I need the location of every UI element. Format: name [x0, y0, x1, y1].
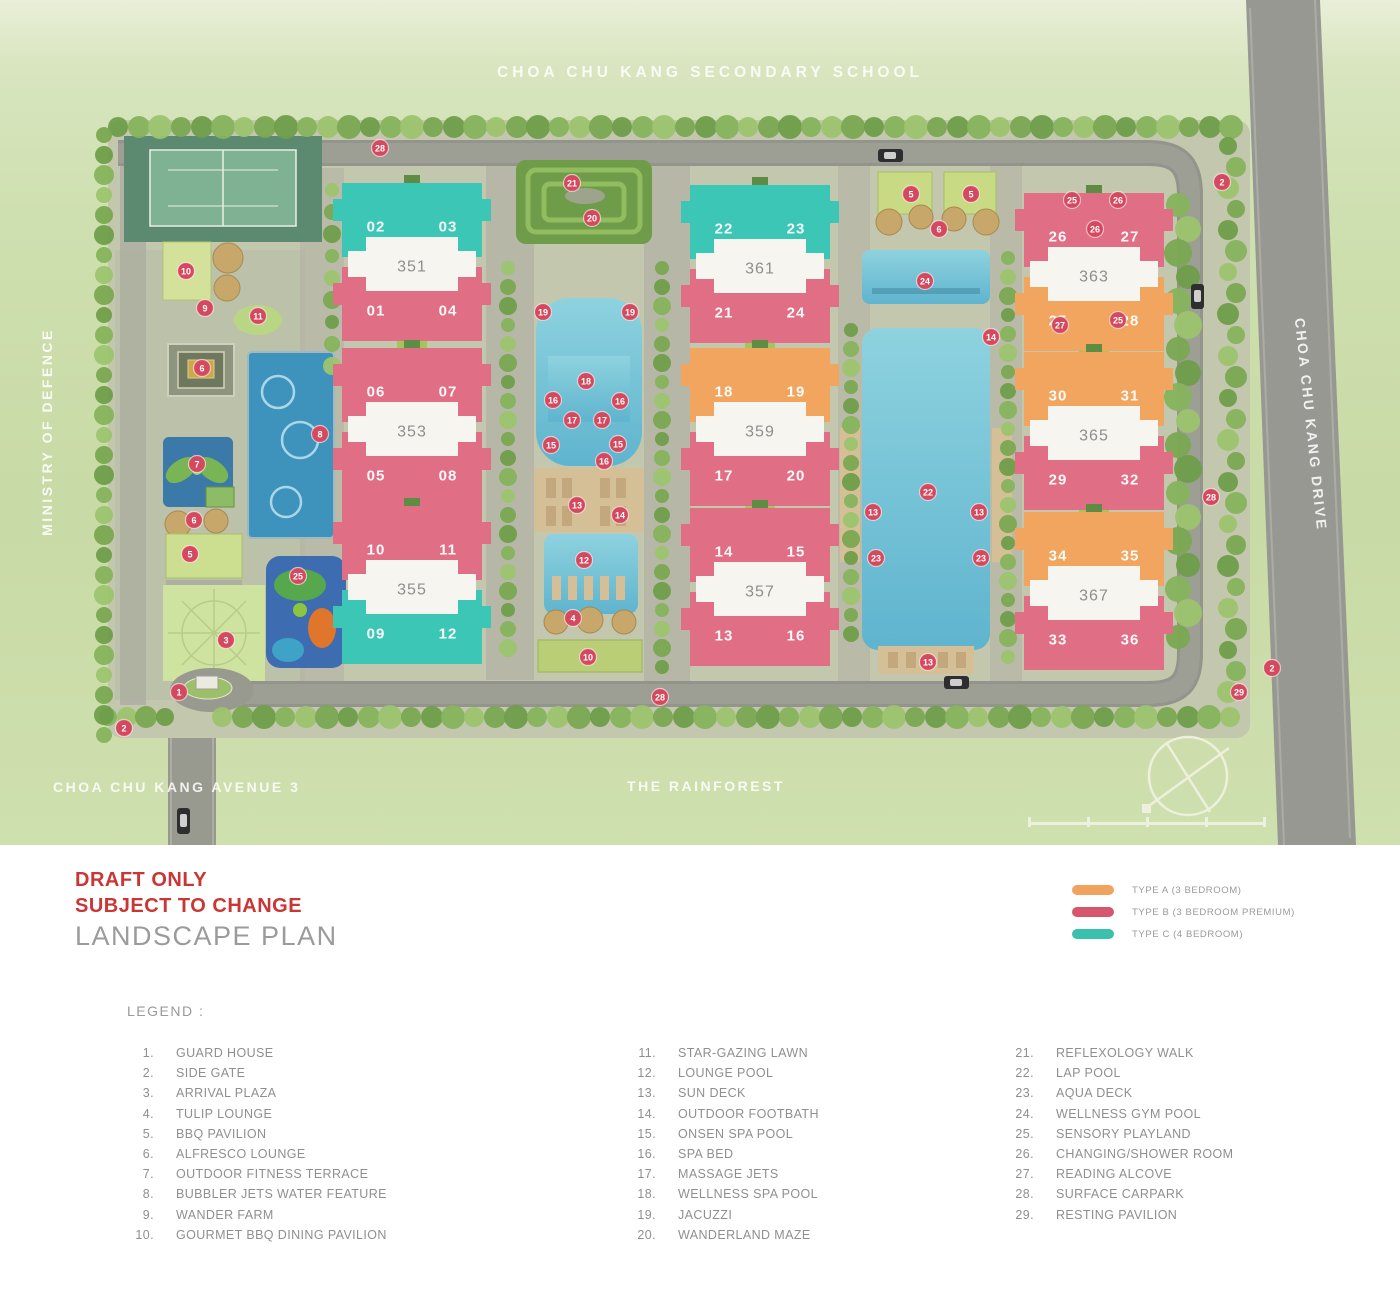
legend-item: 14.OUTDOOR FOOTBATH — [622, 1104, 819, 1124]
rainforest-label: THE RAINFOREST — [627, 778, 785, 794]
svg-text:16: 16 — [615, 397, 625, 407]
type-swatch — [1072, 929, 1114, 939]
svg-text:26: 26 — [1090, 225, 1100, 235]
svg-text:23: 23 — [871, 554, 881, 564]
amenity-marker-11: 11 — [250, 308, 267, 325]
landscape-plan-map: 0203010435106070508353101109123552223212… — [0, 0, 1400, 845]
svg-text:5: 5 — [908, 190, 913, 200]
legend-column-3: 21.REFLEXOLOGY WALK22.LAP POOL23.AQUA DE… — [1000, 1043, 1233, 1225]
svg-text:13: 13 — [572, 501, 582, 511]
legend-item: 17.MASSAGE JETS — [622, 1164, 819, 1184]
amenity-marker-7: 7 — [189, 456, 206, 473]
legend-item-number: 18. — [622, 1184, 656, 1204]
legend-item: 16.SPA BED — [622, 1144, 819, 1164]
amenity-marker-6: 6 — [186, 512, 203, 529]
svg-text:355: 355 — [397, 582, 427, 599]
amenity-marker-13: 13 — [569, 497, 586, 514]
svg-text:5: 5 — [968, 190, 973, 200]
legend-item: 8.BUBBLER JETS WATER FEATURE — [120, 1184, 387, 1204]
svg-text:361: 361 — [745, 261, 775, 278]
amenity-marker-24: 24 — [917, 273, 934, 290]
legend-item: 4.TULIP LOUNGE — [120, 1104, 387, 1124]
svg-text:18: 18 — [581, 377, 591, 387]
legend-item: 27.READING ALCOVE — [1000, 1164, 1233, 1184]
legend-item-number: 20. — [622, 1225, 656, 1245]
lounge-pool — [544, 534, 638, 614]
legend-item-label: WELLNESS SPA POOL — [678, 1184, 818, 1204]
legend-item-label: OUTDOOR FITNESS TERRACE — [176, 1164, 368, 1184]
legend-item-number: 14. — [622, 1104, 656, 1124]
svg-text:36: 36 — [1121, 632, 1140, 649]
unit-type-legend: TYPE A (3 BEDROOM)TYPE B (3 BEDROOM PREM… — [1072, 885, 1295, 951]
type-label: TYPE B (3 BEDROOM PREMIUM) — [1132, 907, 1295, 918]
legend-column-1: 1.GUARD HOUSE2.SIDE GATE3.ARRIVAL PLAZA4… — [120, 1043, 387, 1245]
legend-item-number: 27. — [1000, 1164, 1034, 1184]
legend-item-label: ONSEN SPA POOL — [678, 1124, 793, 1144]
building-stack-363: 26272528363 — [1015, 185, 1173, 361]
amenity-marker-28: 28 — [372, 140, 389, 157]
legend-item-label: TULIP LOUNGE — [176, 1104, 272, 1124]
svg-text:25: 25 — [1113, 316, 1123, 326]
svg-text:04: 04 — [439, 303, 458, 320]
legend-item-label: STAR-GAZING LAWN — [678, 1043, 808, 1063]
svg-text:5: 5 — [187, 550, 192, 560]
legend-item-label: LAP POOL — [1056, 1063, 1121, 1083]
amenity-marker-12: 12 — [576, 552, 593, 569]
svg-text:4: 4 — [570, 614, 575, 624]
legend-item-number: 4. — [120, 1104, 154, 1124]
building-stack-357: 14151316357 — [681, 500, 839, 666]
arrival-plaza — [163, 585, 265, 681]
amenity-marker-26: 26 — [1110, 192, 1127, 209]
legend-item: 19.JACUZZI — [622, 1205, 819, 1225]
amenity-marker-6: 6 — [931, 221, 948, 238]
mindef-label: MINISTRY OF DEFENCE — [39, 328, 55, 536]
legend-item: 1.GUARD HOUSE — [120, 1043, 387, 1063]
legend-item-label: BUBBLER JETS WATER FEATURE — [176, 1184, 387, 1204]
svg-text:32: 32 — [1121, 472, 1140, 489]
amenity-marker-25: 25 — [1064, 192, 1081, 209]
legend-item-label: SPA BED — [678, 1144, 733, 1164]
svg-text:27: 27 — [1121, 229, 1140, 246]
amenity-marker-15: 15 — [610, 436, 627, 453]
amenity-marker-21: 21 — [564, 175, 581, 192]
amenity-marker-22: 22 — [920, 484, 937, 501]
type-legend-row: TYPE C (4 BEDROOM) — [1072, 929, 1295, 939]
svg-text:13: 13 — [974, 508, 984, 518]
svg-text:2: 2 — [121, 724, 126, 734]
legend-item: 13.SUN DECK — [622, 1083, 819, 1103]
svg-text:3: 3 — [223, 636, 228, 646]
bubbler-jets-water-feature — [248, 352, 334, 538]
legend-item-number: 26. — [1000, 1144, 1034, 1164]
building-stack-355: 10110912355 — [333, 498, 491, 664]
legend-item: 28.SURFACE CARPARK — [1000, 1184, 1233, 1204]
svg-text:25: 25 — [293, 572, 303, 582]
legend-item-number: 12. — [622, 1063, 656, 1083]
svg-text:24: 24 — [920, 277, 930, 287]
gourmet-pavilion-northwest — [163, 242, 243, 301]
school-label: CHOA CHU KANG SECONDARY SCHOOL — [497, 64, 923, 81]
svg-text:365: 365 — [1079, 428, 1109, 445]
amenity-marker-8: 8 — [312, 426, 329, 443]
svg-text:17: 17 — [715, 468, 734, 485]
amenity-marker-25: 25 — [290, 568, 307, 585]
svg-text:20: 20 — [587, 214, 597, 224]
amenity-marker-3: 3 — [218, 632, 235, 649]
svg-text:26: 26 — [1049, 229, 1068, 246]
legend-item-number: 24. — [1000, 1104, 1034, 1124]
car-icon — [878, 149, 903, 162]
svg-text:359: 359 — [745, 424, 775, 441]
svg-text:29: 29 — [1234, 688, 1244, 698]
svg-text:16: 16 — [548, 396, 558, 406]
tulip-lounge — [544, 607, 636, 634]
legend-item: 6.ALFRESCO LOUNGE — [120, 1144, 387, 1164]
amenity-marker-5: 5 — [903, 186, 920, 203]
legend-item-label: JACUZZI — [678, 1205, 732, 1225]
svg-text:357: 357 — [745, 584, 775, 601]
amenity-marker-16: 16 — [596, 453, 613, 470]
amenity-marker-1: 1 — [171, 684, 188, 701]
legend-item-label: MASSAGE JETS — [678, 1164, 779, 1184]
amenity-marker-13: 13 — [920, 654, 937, 671]
svg-text:363: 363 — [1079, 269, 1109, 286]
svg-text:06: 06 — [367, 384, 386, 401]
svg-text:19: 19 — [538, 308, 548, 318]
svg-text:28: 28 — [375, 144, 385, 154]
amenity-marker-2: 2 — [1214, 174, 1231, 191]
svg-text:28: 28 — [1206, 493, 1216, 503]
legend-item-label: SIDE GATE — [176, 1063, 245, 1083]
amenity-marker-23: 23 — [973, 550, 990, 567]
amenity-marker-29: 29 — [1231, 684, 1248, 701]
legend-item-label: WELLNESS GYM POOL — [1056, 1104, 1201, 1124]
legend-item: 26.CHANGING/SHOWER ROOM — [1000, 1144, 1233, 1164]
svg-text:30: 30 — [1049, 388, 1068, 405]
svg-text:11: 11 — [439, 542, 457, 559]
car-icon — [944, 676, 969, 689]
amenity-marker-2: 2 — [1264, 660, 1281, 677]
tennis-court — [124, 136, 322, 242]
legend-item: 25.SENSORY PLAYLAND — [1000, 1124, 1233, 1144]
legend-item-label: CHANGING/SHOWER ROOM — [1056, 1144, 1233, 1164]
svg-text:02: 02 — [367, 219, 386, 236]
svg-text:6: 6 — [199, 364, 204, 374]
svg-text:15: 15 — [546, 441, 556, 451]
legend-item-number: 13. — [622, 1083, 656, 1103]
legend-item-number: 15. — [622, 1124, 656, 1144]
svg-text:29: 29 — [1049, 472, 1068, 489]
legend-item-label: SURFACE CARPARK — [1056, 1184, 1184, 1204]
amenity-marker-19: 19 — [622, 304, 639, 321]
draft-line2: SUBJECT TO CHANGE — [75, 893, 302, 919]
building-stack-365: 30312932365 — [1015, 344, 1173, 520]
legend-item: 24.WELLNESS GYM POOL — [1000, 1104, 1233, 1124]
amenity-marker-19: 19 — [535, 304, 552, 321]
amenity-marker-9: 9 — [197, 300, 214, 317]
legend-column-2: 11.STAR-GAZING LAWN12.LOUNGE POOL13.SUN … — [622, 1043, 819, 1245]
svg-text:353: 353 — [397, 424, 427, 441]
amenity-marker-28: 28 — [1203, 489, 1220, 506]
svg-text:10: 10 — [181, 267, 191, 277]
legend-item: 3.ARRIVAL PLAZA — [120, 1083, 387, 1103]
svg-text:09: 09 — [367, 626, 386, 643]
legend-item-number: 3. — [120, 1083, 154, 1103]
legend-item-number: 21. — [1000, 1043, 1034, 1063]
svg-text:12: 12 — [439, 626, 458, 643]
svg-text:23: 23 — [787, 221, 806, 238]
info-panel: DRAFT ONLY SUBJECT TO CHANGE LANDSCAPE P… — [0, 845, 1400, 1298]
svg-text:07: 07 — [439, 384, 458, 401]
svg-text:27: 27 — [1055, 321, 1065, 331]
svg-text:33: 33 — [1049, 632, 1068, 649]
legend-item: 2.SIDE GATE — [120, 1063, 387, 1083]
legend-item-number: 7. — [120, 1164, 154, 1184]
legend-item-number: 9. — [120, 1205, 154, 1225]
svg-text:15: 15 — [787, 544, 806, 561]
legend-item-number: 16. — [622, 1144, 656, 1164]
amenity-marker-20: 20 — [584, 210, 601, 227]
amenity-marker-13: 13 — [971, 504, 988, 521]
svg-text:25: 25 — [1067, 196, 1077, 206]
amenity-marker-4: 4 — [565, 610, 582, 627]
amenity-marker-13: 13 — [865, 504, 882, 521]
svg-text:2: 2 — [1269, 664, 1274, 674]
legend-item: 23.AQUA DECK — [1000, 1083, 1233, 1103]
svg-text:22: 22 — [715, 221, 734, 238]
legend-item: 12.LOUNGE POOL — [622, 1063, 819, 1083]
plan-title: LANDSCAPE PLAN — [75, 921, 338, 952]
amenity-marker-23: 23 — [868, 550, 885, 567]
svg-text:08: 08 — [439, 468, 458, 485]
svg-text:21: 21 — [567, 179, 577, 189]
legend-item-label: BBQ PAVILION — [176, 1124, 266, 1144]
legend-item-number: 23. — [1000, 1083, 1034, 1103]
car-icon — [177, 808, 190, 834]
type-label: TYPE A (3 BEDROOM) — [1132, 885, 1242, 896]
legend-item: 20.WANDERLAND MAZE — [622, 1225, 819, 1245]
amenity-marker-5: 5 — [182, 546, 199, 563]
amenity-marker-5: 5 — [963, 186, 980, 203]
svg-text:13: 13 — [923, 658, 933, 668]
type-swatch — [1072, 885, 1114, 895]
car-icon — [1191, 284, 1204, 309]
building-blocks: 0203010435106070508353101109123552223212… — [333, 175, 1173, 670]
building-stack-367: 34353336367 — [1015, 504, 1173, 670]
legend-item-label: GUARD HOUSE — [176, 1043, 273, 1063]
svg-text:01: 01 — [367, 303, 386, 320]
amenity-marker-14: 14 — [983, 329, 1000, 346]
amenity-marker-10: 10 — [178, 263, 195, 280]
legend-item: 5.BBQ PAVILION — [120, 1124, 387, 1144]
svg-text:11: 11 — [253, 312, 263, 322]
svg-text:14: 14 — [615, 511, 625, 521]
wanderland-maze — [516, 160, 652, 244]
building-stack-361: 22232124361 — [681, 177, 839, 353]
legend-item-label: SUN DECK — [678, 1083, 746, 1103]
legend-item-number: 25. — [1000, 1124, 1034, 1144]
svg-text:22: 22 — [923, 488, 933, 498]
svg-text:8: 8 — [317, 430, 322, 440]
legend-item-label: RESTING PAVILION — [1056, 1205, 1177, 1225]
legend-item-label: WANDER FARM — [176, 1205, 274, 1225]
legend-item-number: 19. — [622, 1205, 656, 1225]
svg-text:13: 13 — [868, 508, 878, 518]
svg-text:31: 31 — [1121, 388, 1140, 405]
amenity-marker-17: 17 — [564, 412, 581, 429]
legend-item-label: REFLEXOLOGY WALK — [1056, 1043, 1194, 1063]
amenity-marker-17: 17 — [594, 412, 611, 429]
svg-text:03: 03 — [439, 219, 458, 236]
svg-text:7: 7 — [194, 460, 199, 470]
sun-deck — [534, 468, 644, 532]
svg-text:19: 19 — [625, 308, 635, 318]
svg-text:14: 14 — [715, 544, 734, 561]
legend-item-label: SENSORY PLAYLAND — [1056, 1124, 1191, 1144]
amenity-marker-27: 27 — [1052, 317, 1069, 334]
svg-text:05: 05 — [367, 468, 386, 485]
svg-text:34: 34 — [1049, 548, 1068, 565]
legend-item-label: GOURMET BBQ DINING PAVILION — [176, 1225, 387, 1245]
svg-text:16: 16 — [599, 457, 609, 467]
amenity-marker-2: 2 — [116, 720, 133, 737]
legend-item-label: AQUA DECK — [1056, 1083, 1133, 1103]
legend-item: 18.WELLNESS SPA POOL — [622, 1184, 819, 1204]
amenity-marker-16: 16 — [545, 392, 562, 409]
legend-title: LEGEND : — [127, 1003, 204, 1019]
svg-text:20: 20 — [787, 468, 806, 485]
legend-item-number: 22. — [1000, 1063, 1034, 1083]
legend-item: 15.ONSEN SPA POOL — [622, 1124, 819, 1144]
landscape-plan-page: 0203010435106070508353101109123552223212… — [0, 0, 1400, 1298]
draft-line1: DRAFT ONLY — [75, 867, 302, 893]
type-legend-row: TYPE B (3 BEDROOM PREMIUM) — [1072, 907, 1295, 917]
legend-item-number: 6. — [120, 1144, 154, 1164]
svg-text:6: 6 — [936, 225, 941, 235]
legend-item-number: 2. — [120, 1063, 154, 1083]
legend-item-number: 11. — [622, 1043, 656, 1063]
legend-item-number: 28. — [1000, 1184, 1034, 1204]
building-stack-353: 06070508353 — [333, 340, 491, 516]
svg-text:16: 16 — [787, 628, 806, 645]
svg-text:367: 367 — [1079, 588, 1109, 605]
svg-text:6: 6 — [191, 516, 196, 526]
svg-text:14: 14 — [986, 333, 996, 343]
amenity-marker-26: 26 — [1087, 221, 1104, 238]
svg-text:24: 24 — [787, 305, 806, 322]
legend-item: 9.WANDER FARM — [120, 1205, 387, 1225]
svg-text:10: 10 — [367, 542, 386, 559]
amenity-marker-28: 28 — [652, 689, 669, 706]
legend-item: 29.RESTING PAVILION — [1000, 1205, 1233, 1225]
legend-item-number: 29. — [1000, 1205, 1034, 1225]
building-stack-351: 02030104351 — [333, 175, 491, 351]
legend-item-label: LOUNGE POOL — [678, 1063, 773, 1083]
legend-item-number: 5. — [120, 1124, 154, 1144]
svg-text:18: 18 — [715, 384, 734, 401]
svg-text:13: 13 — [715, 628, 734, 645]
amenity-marker-6: 6 — [194, 360, 211, 377]
svg-text:1: 1 — [176, 688, 181, 698]
amenity-marker-10: 10 — [580, 649, 597, 666]
svg-text:21: 21 — [715, 305, 734, 322]
legend-item-number: 10. — [120, 1225, 154, 1245]
cck-avenue3-label: CHOA CHU KANG AVENUE 3 — [53, 779, 300, 795]
legend-item: 22.LAP POOL — [1000, 1063, 1233, 1083]
amenity-marker-14: 14 — [612, 507, 629, 524]
legend-item-number: 8. — [120, 1184, 154, 1204]
legend-item-label: READING ALCOVE — [1056, 1164, 1172, 1184]
svg-text:17: 17 — [597, 416, 607, 426]
amenity-marker-15: 15 — [543, 437, 560, 454]
legend-item: 7.OUTDOOR FITNESS TERRACE — [120, 1164, 387, 1184]
legend-item: 11.STAR-GAZING LAWN — [622, 1043, 819, 1063]
type-legend-row: TYPE A (3 BEDROOM) — [1072, 885, 1295, 895]
legend-item: 21.REFLEXOLOGY WALK — [1000, 1043, 1233, 1063]
svg-text:10: 10 — [583, 653, 593, 663]
amenity-marker-25: 25 — [1110, 312, 1127, 329]
legend-item-number: 1. — [120, 1043, 154, 1063]
amenity-marker-18: 18 — [578, 373, 595, 390]
legend-item: 10.GOURMET BBQ DINING PAVILION — [120, 1225, 387, 1245]
building-stack-359: 18191720359 — [681, 340, 839, 516]
svg-text:9: 9 — [202, 304, 207, 314]
svg-text:19: 19 — [787, 384, 806, 401]
legend-item-label: ALFRESCO LOUNGE — [176, 1144, 306, 1164]
svg-text:35: 35 — [1121, 548, 1140, 565]
svg-text:351: 351 — [397, 259, 427, 276]
svg-text:26: 26 — [1113, 196, 1123, 206]
legend-item-number: 17. — [622, 1164, 656, 1184]
svg-text:15: 15 — [613, 440, 623, 450]
svg-text:28: 28 — [655, 693, 665, 703]
amenity-marker-16: 16 — [612, 393, 629, 410]
legend-item-label: OUTDOOR FOOTBATH — [678, 1104, 819, 1124]
svg-text:12: 12 — [579, 556, 589, 566]
type-label: TYPE C (4 BEDROOM) — [1132, 929, 1243, 940]
legend-item-label: ARRIVAL PLAZA — [176, 1083, 276, 1103]
legend-item-label: WANDERLAND MAZE — [678, 1225, 811, 1245]
svg-text:23: 23 — [976, 554, 986, 564]
svg-text:2: 2 — [1219, 178, 1224, 188]
svg-text:17: 17 — [567, 416, 577, 426]
draft-note: DRAFT ONLY SUBJECT TO CHANGE — [75, 867, 302, 919]
type-swatch — [1072, 907, 1114, 917]
